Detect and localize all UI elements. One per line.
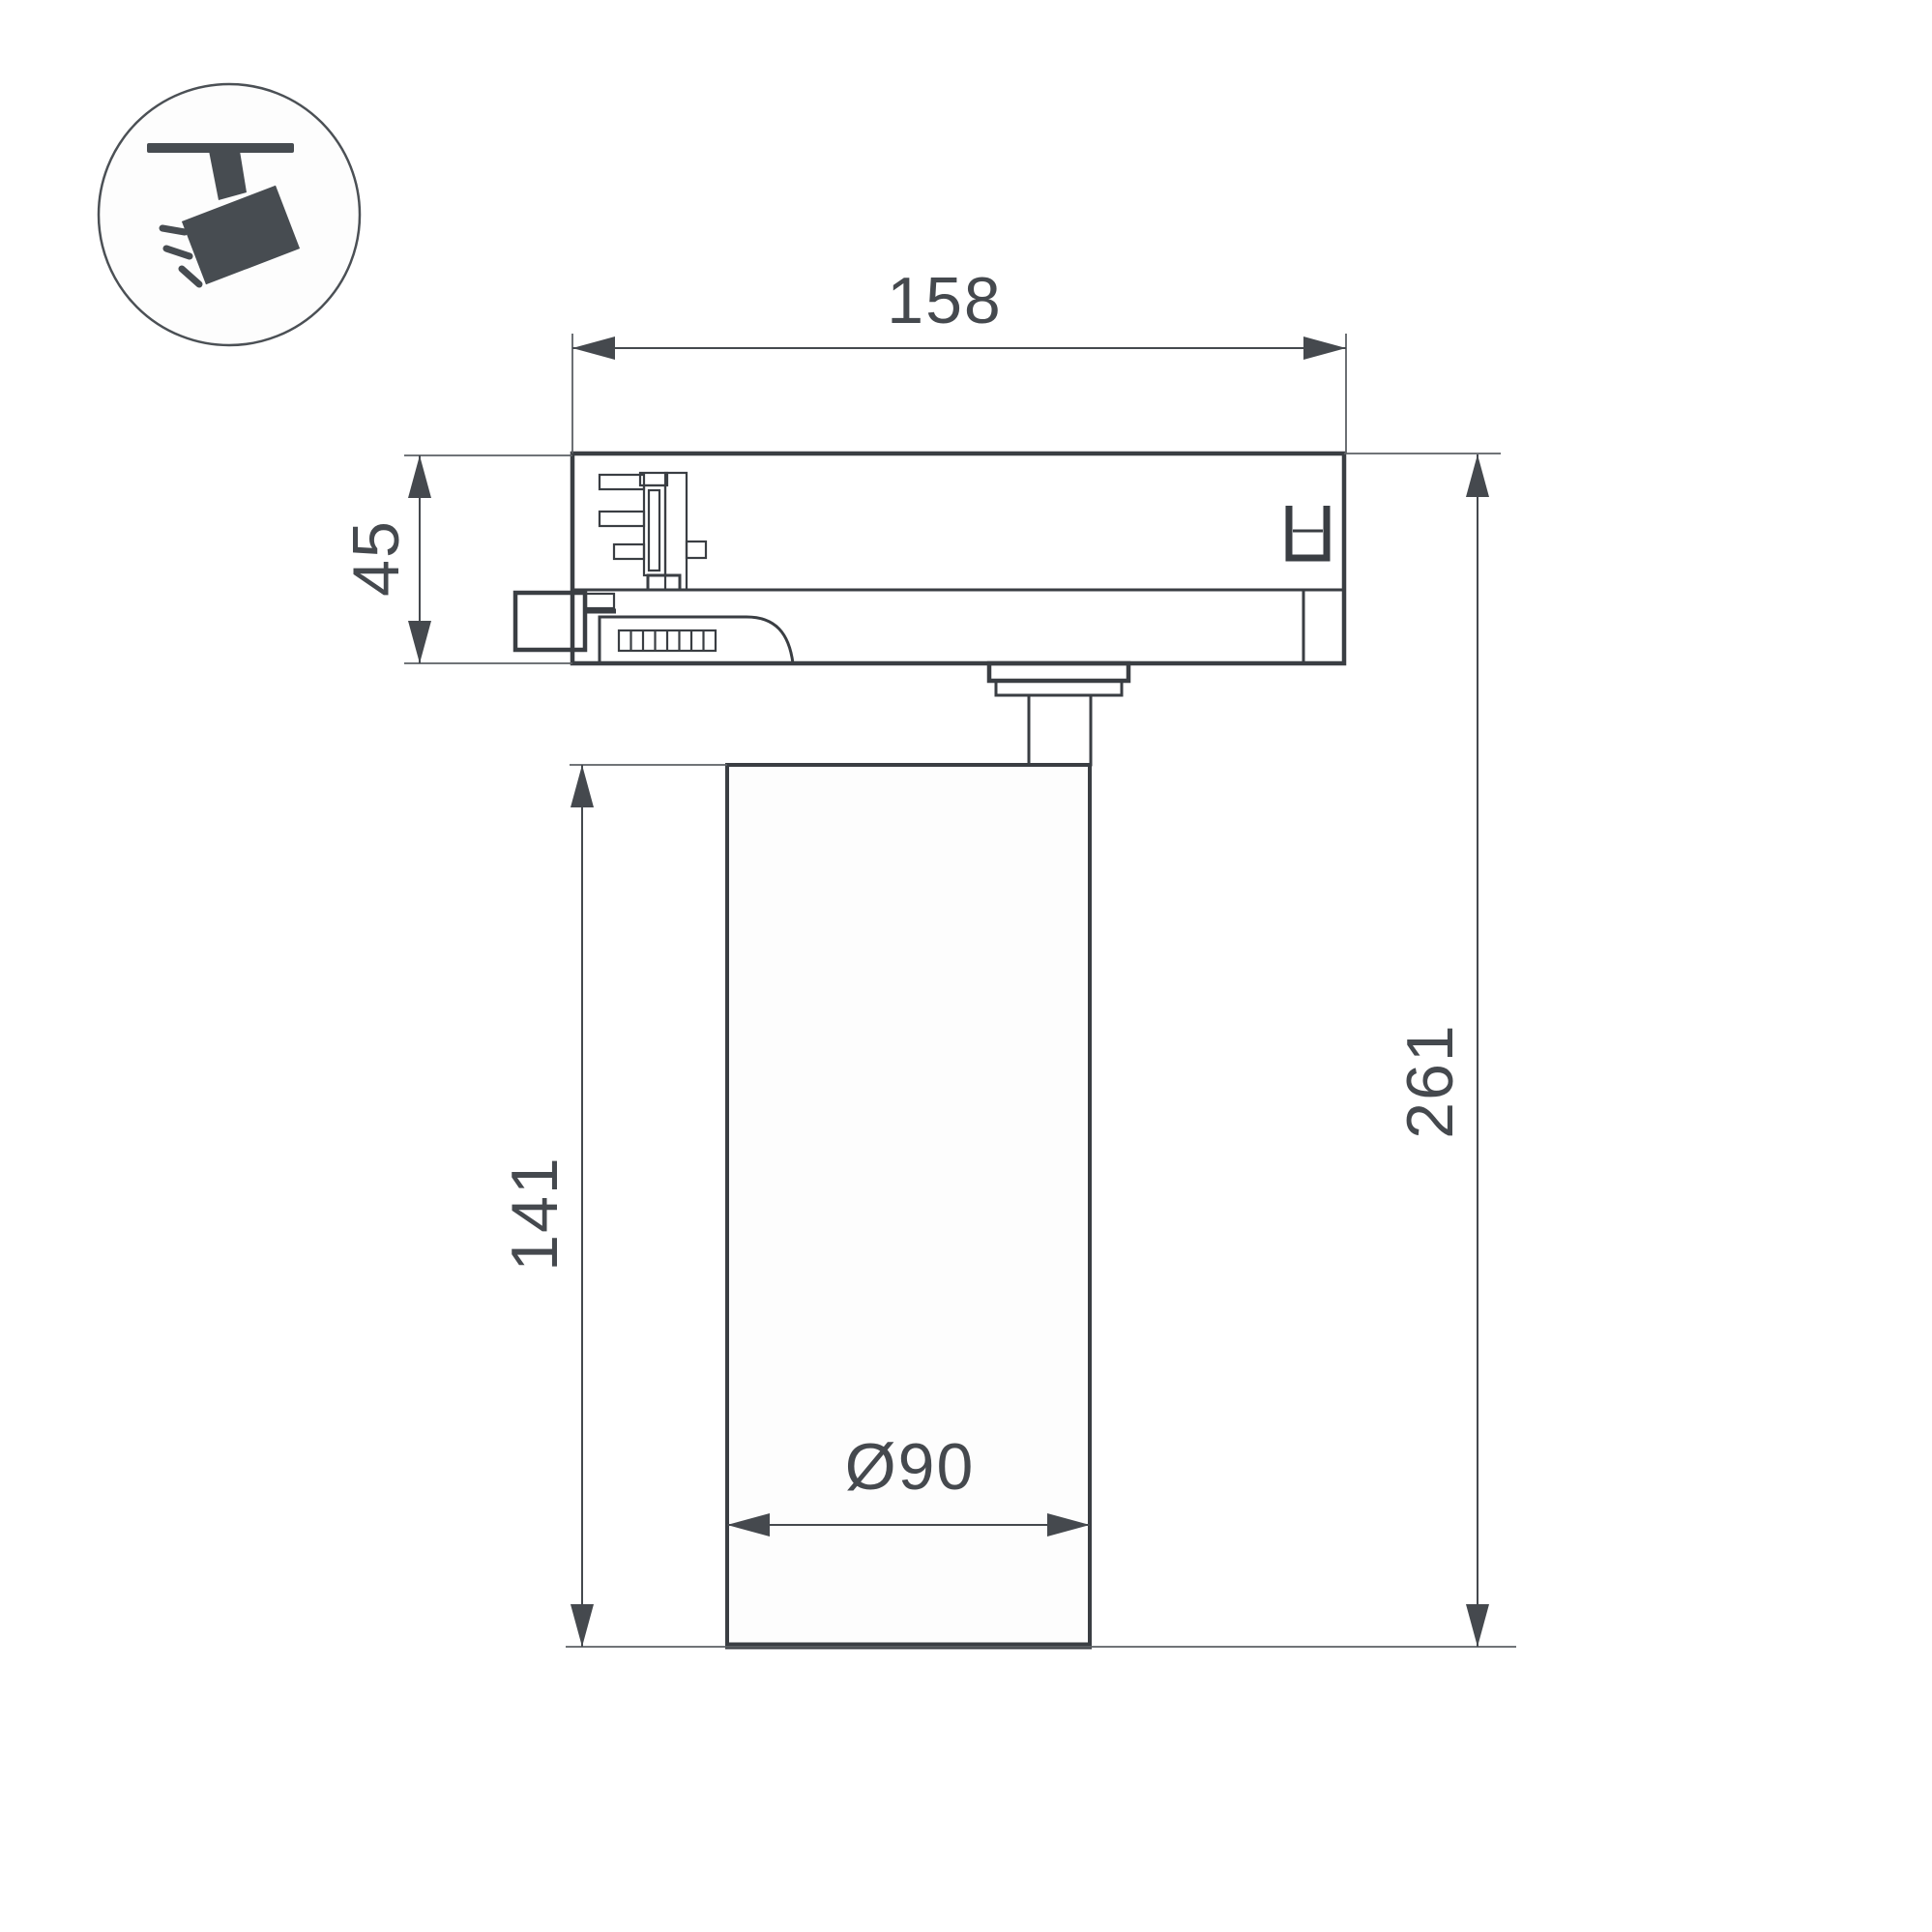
dimension-label: 45 [339,519,413,597]
lamp-body [725,765,1092,1646]
arrowhead-down [408,621,431,663]
swivel-stem [1029,695,1091,765]
product-dimension-drawing: 158 45 141 261 Ø90 [0,0,1932,1932]
arrowhead-right [1303,337,1346,360]
icon-light-ray [162,228,185,232]
dimension-label: 158 [887,264,1002,337]
dimension-label: 261 [1393,1023,1467,1138]
track-adapter [515,454,1344,663]
dimension-261: 261 [1344,454,1501,1647]
arrowhead-up [1466,454,1489,497]
lamp-body-cylinder [727,765,1090,1646]
arrowhead-up [408,455,431,498]
arrowhead-down [571,1604,594,1647]
mount-pedestal [989,663,1128,765]
mount-step-upper [989,663,1128,681]
product-dimension-drawing-page: 158 45 141 261 Ø90 [0,0,1932,1932]
dimension-label: Ø90 [845,1430,976,1504]
arrowhead-up [571,765,594,807]
dimension-label: 141 [498,1156,571,1271]
dimension-158: 158 [572,264,1346,454]
dimension-45: 45 [339,455,572,663]
track-light-icon [99,84,360,345]
arrowhead-left [572,337,615,360]
arrowhead-down [1466,1604,1489,1647]
